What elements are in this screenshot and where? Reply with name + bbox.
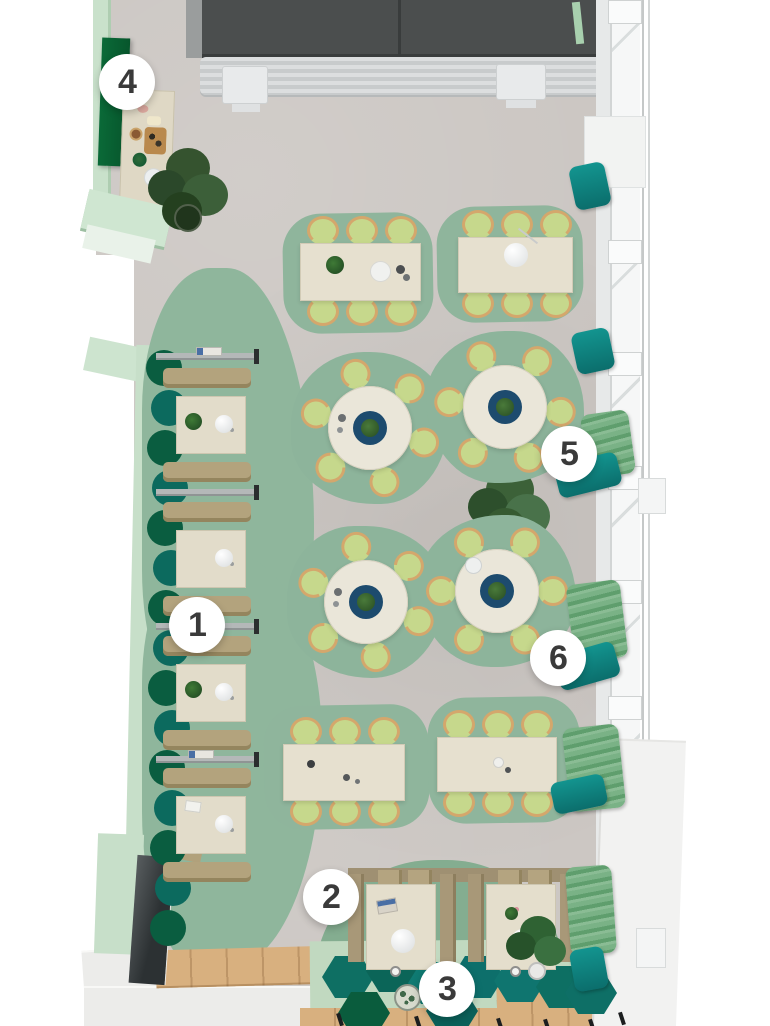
booth-table-plant bbox=[185, 681, 202, 698]
dining-chair bbox=[368, 717, 400, 746]
booth-partition-cap bbox=[254, 619, 259, 634]
tree-pot bbox=[174, 204, 202, 232]
dining-chair bbox=[385, 216, 417, 245]
dining-chair bbox=[290, 797, 322, 826]
booth-table bbox=[176, 530, 246, 588]
dining-chair bbox=[482, 710, 514, 739]
table-item bbox=[307, 760, 315, 768]
dining-chair bbox=[501, 289, 533, 318]
dining-chair bbox=[443, 710, 475, 739]
window-mullion bbox=[608, 240, 642, 264]
marker-4[interactable]: 4 bbox=[99, 54, 155, 110]
table-plate bbox=[370, 261, 391, 282]
booth-bench bbox=[163, 730, 251, 750]
plant-foliage bbox=[506, 932, 536, 960]
table-centerpiece-plant bbox=[361, 419, 379, 437]
dining-chair bbox=[307, 216, 339, 245]
marker-6[interactable]: 6 bbox=[530, 630, 586, 686]
table-condiments bbox=[338, 414, 346, 422]
booth-table-lamp bbox=[215, 683, 233, 701]
table-cups bbox=[396, 265, 405, 274]
dining-chair bbox=[329, 797, 361, 826]
floor-plan-scene: 1 2 3 4 5 6 bbox=[0, 0, 770, 1026]
table-centerpiece-plant bbox=[357, 593, 375, 611]
booth-bench bbox=[163, 862, 251, 882]
dining-chair bbox=[521, 710, 553, 739]
marker-4-label: 4 bbox=[118, 63, 136, 102]
booth-partition-shelf bbox=[156, 489, 256, 496]
window-mullion bbox=[608, 696, 642, 720]
counter-herb-cup bbox=[132, 153, 146, 167]
marker-2-label: 2 bbox=[322, 878, 340, 917]
table-item bbox=[505, 767, 511, 773]
booth-table-lamp bbox=[215, 415, 233, 433]
booth-bench bbox=[163, 768, 251, 788]
dining-chair bbox=[426, 576, 456, 606]
shelf-magazines bbox=[188, 750, 214, 759]
marker-2[interactable]: 2 bbox=[303, 869, 359, 925]
bottom-planter bbox=[506, 916, 568, 986]
booth-table bbox=[176, 396, 246, 454]
marker-1-label: 1 bbox=[188, 606, 206, 645]
booth-backrest-scallop bbox=[150, 910, 186, 946]
outside-left-top bbox=[0, 0, 96, 280]
dining-chair bbox=[538, 576, 568, 606]
marker-3-label: 3 bbox=[438, 970, 456, 1009]
dining-chair bbox=[385, 297, 417, 326]
long-table bbox=[283, 744, 405, 801]
booth-table-lamp bbox=[215, 549, 233, 567]
entry-seam bbox=[398, 0, 401, 56]
pendant-lamp bbox=[504, 243, 528, 267]
plant-pot bbox=[528, 962, 546, 980]
table-plant bbox=[326, 256, 344, 274]
dining-chair bbox=[482, 788, 514, 817]
marker-5[interactable]: 5 bbox=[541, 426, 597, 482]
curtain bbox=[565, 865, 617, 956]
shelf-magazines bbox=[196, 347, 222, 356]
lounge-table-magazine bbox=[376, 897, 398, 914]
mosaic-plate bbox=[394, 984, 421, 1011]
counter-hatch-right-lip bbox=[506, 100, 536, 108]
dining-chair bbox=[521, 788, 553, 817]
dining-chair bbox=[540, 210, 572, 239]
table-condiments bbox=[334, 588, 342, 596]
booth-table-plant bbox=[185, 413, 202, 430]
booth-partition-cap bbox=[254, 752, 259, 767]
booth-partition-cap bbox=[254, 485, 259, 500]
dining-chair bbox=[290, 717, 322, 746]
dining-chair bbox=[346, 297, 378, 326]
counter-bowl bbox=[129, 127, 142, 140]
dining-chair bbox=[443, 788, 475, 817]
table-centerpiece-plant bbox=[488, 582, 506, 600]
tree-planter bbox=[148, 148, 234, 240]
table-item bbox=[343, 774, 350, 781]
counter-butter-dish bbox=[147, 116, 161, 125]
table-item bbox=[493, 757, 504, 768]
lounge-booth-slab bbox=[468, 874, 484, 962]
entry-left-pier bbox=[186, 0, 202, 58]
booth-table bbox=[176, 664, 246, 722]
counter-hatch-left-lip bbox=[232, 104, 260, 112]
window-sill bbox=[638, 478, 666, 514]
dining-chair bbox=[462, 210, 494, 239]
dining-chair bbox=[368, 797, 400, 826]
dining-chair bbox=[462, 289, 494, 318]
booth-bench bbox=[163, 462, 251, 482]
dining-chair bbox=[329, 717, 361, 746]
dining-chair bbox=[307, 297, 339, 326]
counter-hatch-right bbox=[496, 64, 546, 100]
marker-5-label: 5 bbox=[560, 435, 578, 474]
dining-chair bbox=[346, 216, 378, 245]
window-mullion bbox=[608, 0, 642, 24]
window-bench bbox=[569, 945, 610, 992]
booth-table-papers bbox=[184, 800, 201, 813]
lounge-table-lamp bbox=[391, 929, 415, 953]
dining-chair bbox=[540, 289, 572, 318]
booth-partition-cap bbox=[254, 349, 259, 364]
table-centerpiece-plant bbox=[496, 398, 514, 416]
lounge-table bbox=[366, 884, 436, 970]
window-sill bbox=[636, 928, 666, 968]
table-bowl bbox=[465, 557, 482, 574]
lamp-switch-knob bbox=[390, 966, 401, 977]
marker-6-label: 6 bbox=[549, 639, 567, 678]
lounge-booth-slab bbox=[440, 874, 456, 962]
booth-table-lamp bbox=[215, 815, 233, 833]
booth-bench bbox=[163, 368, 251, 388]
booth-bench bbox=[163, 502, 251, 522]
marker-1[interactable]: 1 bbox=[169, 597, 225, 653]
counter-hatch-left bbox=[222, 66, 268, 104]
booth-table bbox=[176, 796, 246, 854]
marker-3[interactable]: 3 bbox=[419, 961, 475, 1017]
wood-strip-left bbox=[156, 946, 335, 989]
